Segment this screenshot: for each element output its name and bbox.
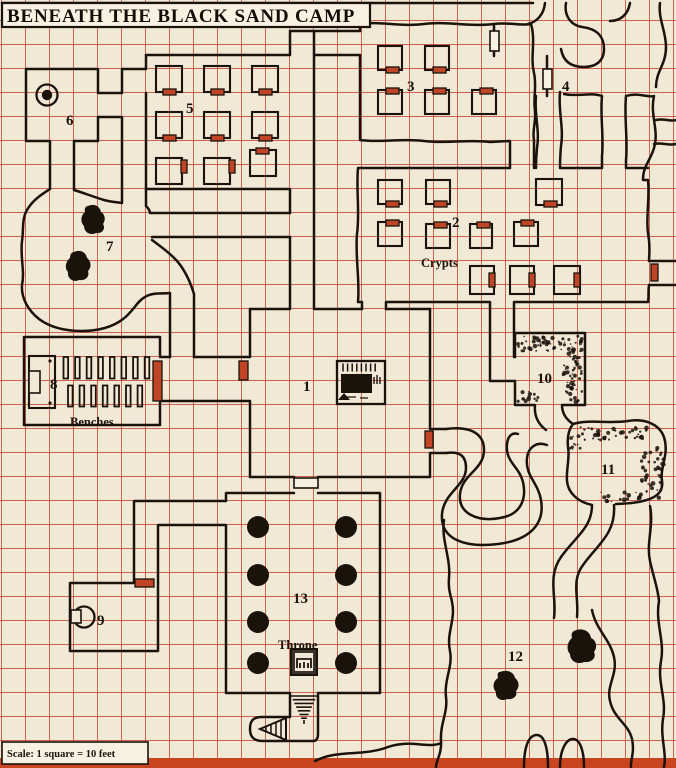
room-label-5: 5: [186, 101, 194, 117]
door-icon: [386, 67, 399, 73]
door-icon: [211, 89, 224, 95]
dungeon-map: 1 2 3 4 5 6 7 8 9 10 11 12 13 Crypts Ben…: [0, 0, 676, 768]
door-icon: [651, 264, 658, 281]
map-title: BENEATH THE BLACK SAND CAMP: [7, 6, 355, 27]
room-label-9: 9: [97, 613, 105, 629]
door-icon: [386, 201, 399, 207]
door-icon: [574, 273, 580, 287]
pillar-icon: [335, 611, 357, 633]
door-icon: [425, 431, 433, 448]
door-icon: [434, 201, 447, 207]
door-icon: [181, 160, 187, 173]
room-label-6: 6: [66, 113, 74, 129]
door-icon: [433, 67, 446, 73]
room-label-10: 10: [537, 371, 552, 387]
door-icon: [135, 579, 154, 587]
door-icon: [229, 160, 235, 173]
pillar-icon: [335, 516, 357, 538]
door-icon: [544, 201, 557, 207]
door-icon: [433, 88, 446, 94]
room-label-2: 2: [452, 215, 460, 231]
benches-label: Benches: [70, 415, 114, 429]
scale-note: Scale: 1 square = 10 feet: [7, 749, 116, 760]
room-label-1: 1: [303, 379, 311, 395]
door-icon: [434, 222, 447, 228]
door-icon: [529, 273, 535, 287]
door-icon: [490, 31, 499, 51]
room-label-13: 13: [293, 591, 308, 607]
door-icon: [239, 361, 248, 380]
door-icon: [489, 273, 495, 287]
room-label-12: 12: [508, 649, 523, 665]
door-icon: [480, 88, 493, 94]
door-icon: [153, 361, 162, 401]
scale-box: Scale: 1 square = 10 feet: [2, 742, 148, 764]
door-icon: [386, 88, 399, 94]
altar-icon: [341, 374, 372, 393]
door-icon: [163, 135, 176, 141]
door-icon: [477, 222, 490, 228]
room-label-4: 4: [562, 79, 570, 95]
door-icon: [294, 478, 318, 488]
door-icon: [259, 89, 272, 95]
pillar-icon: [247, 652, 269, 674]
pillar-icon: [335, 652, 357, 674]
pillar-icon: [247, 564, 269, 586]
door-icon: [521, 220, 534, 226]
throne-label: Throne: [278, 638, 318, 652]
door-icon: [211, 135, 224, 141]
dungeon-map-page: 1 2 3 4 5 6 7 8 9 10 11 12 13 Crypts Ben…: [0, 0, 676, 768]
room-label-8: 8: [50, 377, 58, 393]
door-icon: [543, 69, 552, 89]
pillar-icon: [247, 611, 269, 633]
pillar-icon: [335, 564, 357, 586]
throne-icon: [291, 649, 317, 675]
door-icon: [259, 135, 272, 141]
door-icon: [163, 89, 176, 95]
door-icon: [256, 148, 269, 154]
room-label-7: 7: [106, 239, 114, 255]
door-icon: [386, 220, 399, 226]
room-label-11: 11: [601, 462, 615, 478]
title-box: BENEATH THE BLACK SAND CAMP: [2, 3, 370, 27]
room-label-3: 3: [407, 79, 415, 95]
crypts-label: Crypts: [421, 256, 458, 270]
pillar-icon: [247, 516, 269, 538]
